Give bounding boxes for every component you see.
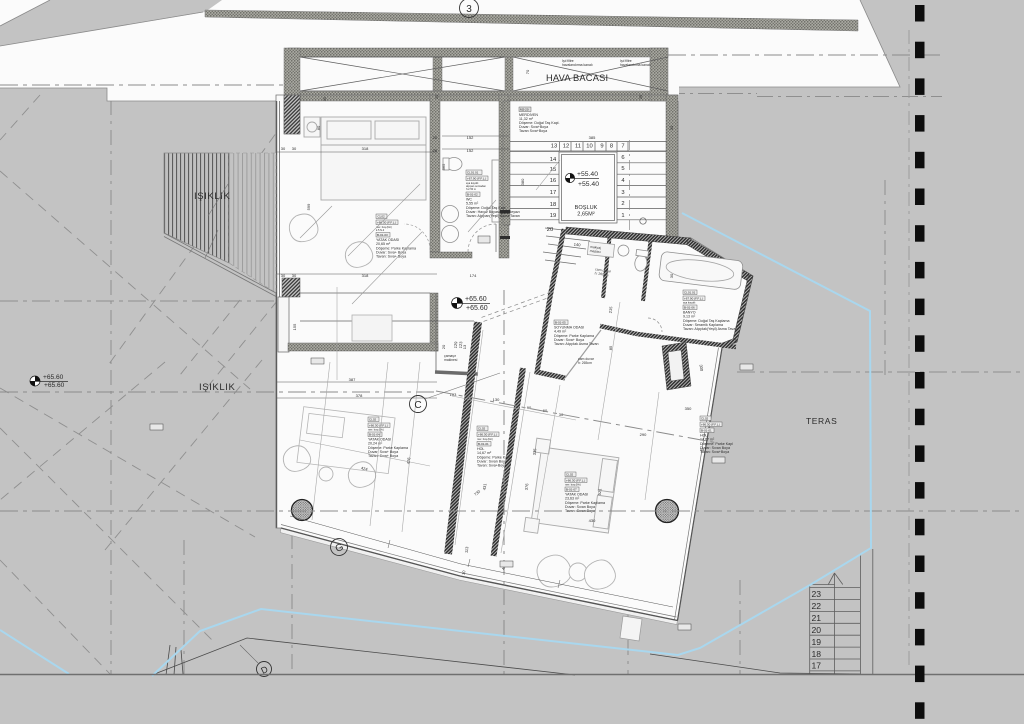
svg-text:599: 599	[306, 203, 311, 210]
svg-text:130: 130	[493, 397, 500, 402]
svg-text:318: 318	[362, 146, 369, 151]
svg-text:36: 36	[638, 94, 643, 99]
svg-text:30: 30	[434, 94, 439, 99]
svg-text:mer. boş.(IHt): mer. boş.(IHt)	[477, 437, 493, 441]
svg-text:5: 5	[621, 166, 624, 172]
svg-text:385: 385	[589, 135, 596, 140]
svg-text:CL01.01: CL01.01	[684, 291, 696, 295]
svg-text:378: 378	[356, 393, 363, 398]
svg-text:2,65M²: 2,65M²	[577, 212, 595, 218]
svg-text:12: 12	[563, 144, 569, 150]
svg-text:mer. boş.(IHt): mer. boş.(IHt)	[565, 483, 581, 487]
svg-text:17: 17	[550, 190, 556, 196]
svg-text:+67.90 (F.F.L.): +67.90 (F.F.L.)	[684, 297, 703, 301]
svg-text:11: 11	[575, 144, 581, 150]
svg-text:20: 20	[812, 625, 822, 635]
svg-text:20,24 m²: 20,24 m²	[368, 442, 383, 446]
svg-text:B-01-01: B-01-01	[478, 442, 489, 446]
svg-text:CL02: CL02	[566, 473, 574, 477]
svg-text:15: 15	[550, 167, 556, 173]
svg-text:13: 13	[700, 447, 705, 452]
svg-text:16: 16	[550, 178, 556, 184]
svg-text:14: 14	[550, 157, 557, 163]
svg-text:h: 265cm: h: 265cm	[578, 361, 592, 365]
svg-text:10: 10	[586, 144, 592, 150]
svg-text:14,67 m²: 14,67 m²	[700, 438, 715, 442]
svg-text:+66.30 (F.F.L.): +66.30 (F.F.L.)	[701, 423, 720, 427]
svg-text:7: 7	[621, 144, 624, 150]
svg-text:174: 174	[470, 273, 477, 278]
svg-text:23,63 m²: 23,63 m²	[565, 497, 580, 501]
svg-text:CL01.01: CL01.01	[467, 171, 479, 175]
svg-text:23: 23	[812, 589, 822, 599]
svg-text:20: 20	[547, 227, 553, 233]
svg-text:aya kaydılı: aya kaydılı	[683, 301, 696, 305]
svg-text:Tavan: Sıva+Boya: Tavan: Sıva+Boya	[700, 450, 729, 454]
svg-text:+67.90 (F.F.L.): +67.90 (F.F.L.)	[467, 177, 486, 181]
svg-text:B-01-01: B-01-01	[701, 429, 712, 433]
svg-text:+55.40: +55.40	[578, 181, 599, 188]
svg-text:Tavan: Sıva+ Boya: Tavan: Sıva+ Boya	[376, 255, 406, 259]
svg-text:+65.60: +65.60	[43, 374, 64, 381]
svg-text:C: C	[414, 400, 421, 411]
svg-text:5,55 m²: 5,55 m²	[466, 202, 479, 206]
svg-text:makinesi: makinesi	[444, 358, 458, 362]
svg-text:Tavan: Alçıplak Asma Tavan: Tavan: Alçıplak Asma Tavan	[554, 342, 598, 346]
svg-text:30: 30	[281, 146, 286, 151]
svg-text:Tavan Sıva+Boya: Tavan Sıva+Boya	[519, 129, 547, 133]
svg-text:387: 387	[349, 377, 356, 382]
svg-text:430: 430	[589, 518, 596, 523]
svg-text:3: 3	[621, 190, 624, 196]
svg-text:M2-20: M2-20	[520, 108, 529, 112]
svg-text:havalandırma kanalı: havalandırma kanalı	[620, 63, 651, 67]
svg-text:B-01-06: B-01-06	[684, 306, 695, 310]
svg-text:123: 123	[458, 341, 464, 349]
svg-text:8: 8	[610, 144, 613, 150]
svg-text:1: 1	[621, 213, 624, 219]
svg-text:CL02: CL02	[701, 417, 709, 421]
svg-text:2: 2	[621, 201, 624, 207]
svg-text:B-01-07: B-01-07	[566, 488, 577, 492]
svg-text:+66.30 (F.F.L.): +66.30 (F.F.L.)	[566, 479, 585, 483]
svg-text:IŞIKLIK: IŞIKLIK	[194, 191, 230, 202]
svg-text:+66.30 (F.F.L.): +66.30 (F.F.L.)	[369, 424, 388, 428]
svg-text:30: 30	[669, 125, 674, 130]
svg-text:BOŞLUK: BOŞLUK	[575, 205, 598, 211]
svg-text:h:2.50 m: h:2.50 m	[466, 187, 476, 191]
svg-text:mer. boş.(IHt): mer. boş.(IHt)	[368, 428, 384, 432]
svg-text:Tavan: Alçıplak(Yeşil) Asma Ta: Tavan: Alçıplak(Yeşil) Asma Tavan	[683, 327, 737, 331]
svg-text:380: 380	[520, 178, 525, 185]
svg-text:21: 21	[812, 613, 822, 623]
svg-text:22: 22	[812, 601, 822, 611]
svg-text:18: 18	[550, 202, 556, 208]
svg-text:+65.60: +65.60	[466, 305, 488, 312]
svg-text:215: 215	[608, 306, 614, 314]
svg-text:155: 155	[292, 323, 297, 330]
svg-text:350: 350	[685, 406, 692, 411]
svg-text:B-01-03: B-01-03	[377, 233, 388, 237]
svg-text:80: 80	[316, 125, 321, 130]
svg-text:20,65 m²: 20,65 m²	[376, 242, 391, 246]
svg-text:k.5 N.d: k.5 N.d	[376, 228, 385, 232]
svg-text:Tavan: Sıva+Boya: Tavan: Sıva+Boya	[477, 464, 506, 468]
svg-text:+65.60: +65.60	[44, 382, 65, 389]
svg-text:CL02: CL02	[378, 215, 386, 219]
svg-text:335: 335	[532, 448, 538, 456]
svg-text:B-01-02: B-01-02	[467, 193, 478, 197]
svg-text:290: 290	[640, 432, 647, 437]
svg-text:20: 20	[441, 344, 446, 349]
svg-text:9: 9	[600, 144, 603, 150]
svg-text:3: 3	[466, 4, 472, 15]
svg-text:17: 17	[812, 661, 822, 671]
svg-text:+55.40: +55.40	[577, 171, 598, 178]
svg-text:Tavan: Alçıpan(Yeşil) Asma Tav: Tavan: Alçıpan(Yeşil) Asma Tavan	[466, 214, 520, 218]
svg-text:HAVA BACASI: HAVA BACASI	[546, 73, 608, 83]
svg-text:19: 19	[812, 637, 822, 647]
svg-text:4,49 m²: 4,49 m²	[554, 330, 567, 334]
svg-text:B-01-04: B-01-04	[369, 433, 380, 437]
svg-text:TERAS: TERAS	[806, 416, 837, 426]
svg-text:9,13 m²: 9,13 m²	[683, 315, 696, 319]
svg-text:14,67 m²: 14,67 m²	[477, 451, 492, 455]
svg-text:30: 30	[292, 146, 297, 151]
svg-text:B-01-05: B-01-05	[555, 321, 566, 325]
svg-text:+66.30 (F.F.L.): +66.30 (F.F.L.)	[478, 433, 497, 437]
svg-text:6: 6	[621, 155, 624, 161]
svg-text:365: 365	[441, 163, 446, 170]
svg-text:CL02: CL02	[478, 427, 486, 431]
svg-text:19: 19	[550, 213, 556, 219]
svg-text:+65.60: +65.60	[465, 296, 487, 303]
svg-text:30: 30	[322, 96, 327, 101]
svg-text:20: 20	[433, 135, 438, 140]
svg-text:13: 13	[551, 144, 557, 150]
svg-text:havalandırma kanalı: havalandırma kanalı	[562, 63, 593, 67]
svg-text:30: 30	[669, 273, 674, 278]
svg-text:70: 70	[525, 69, 530, 74]
svg-text:IŞIKLIK: IŞIKLIK	[199, 382, 235, 393]
svg-text:CL02: CL02	[369, 418, 377, 422]
svg-text:18: 18	[812, 649, 822, 659]
